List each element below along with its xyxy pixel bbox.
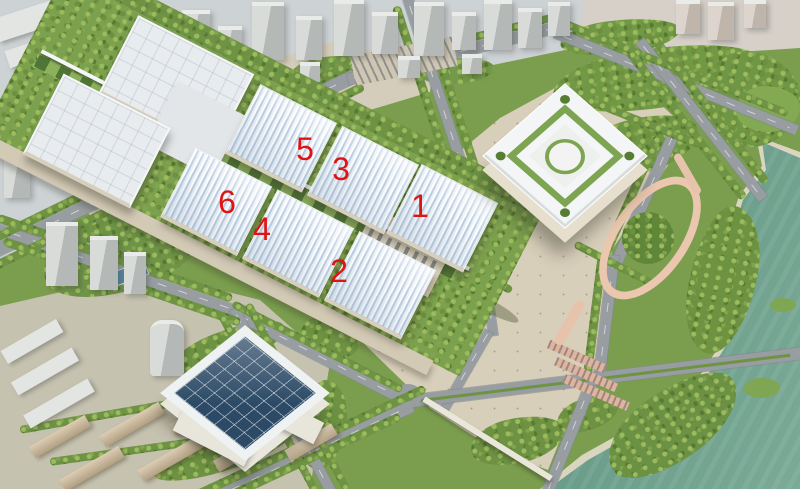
- tower: [484, 0, 512, 50]
- roof-corner-tree: [558, 93, 572, 105]
- tower: [548, 2, 570, 36]
- aerial-rendering: 1 2 3 4 5 6: [0, 0, 800, 489]
- hall-label-5: 5: [296, 133, 314, 165]
- tower: [452, 12, 476, 50]
- tower: [90, 236, 118, 290]
- hall-label-2: 2: [330, 255, 348, 287]
- tower: [372, 12, 398, 54]
- tower: [334, 0, 364, 56]
- roof-corner-tree: [494, 150, 508, 162]
- tower: [676, 0, 700, 34]
- tower: [414, 2, 444, 56]
- tower: [518, 8, 542, 48]
- tower: [708, 2, 734, 40]
- roof-corner-tree: [558, 206, 572, 218]
- tower: [398, 56, 420, 78]
- park-eye-plaza-grove: [622, 212, 674, 264]
- hall-label-3: 3: [332, 153, 350, 185]
- tower: [462, 54, 482, 74]
- hall-label-1: 1: [411, 190, 429, 222]
- tower: [744, 0, 766, 28]
- tower: [46, 222, 78, 286]
- tower: [124, 252, 146, 294]
- tower: [296, 16, 322, 60]
- roof-corner-tree: [622, 150, 636, 162]
- round-tower: [150, 320, 184, 376]
- hall-label-6: 6: [218, 186, 236, 218]
- hall-label-4: 4: [253, 213, 271, 245]
